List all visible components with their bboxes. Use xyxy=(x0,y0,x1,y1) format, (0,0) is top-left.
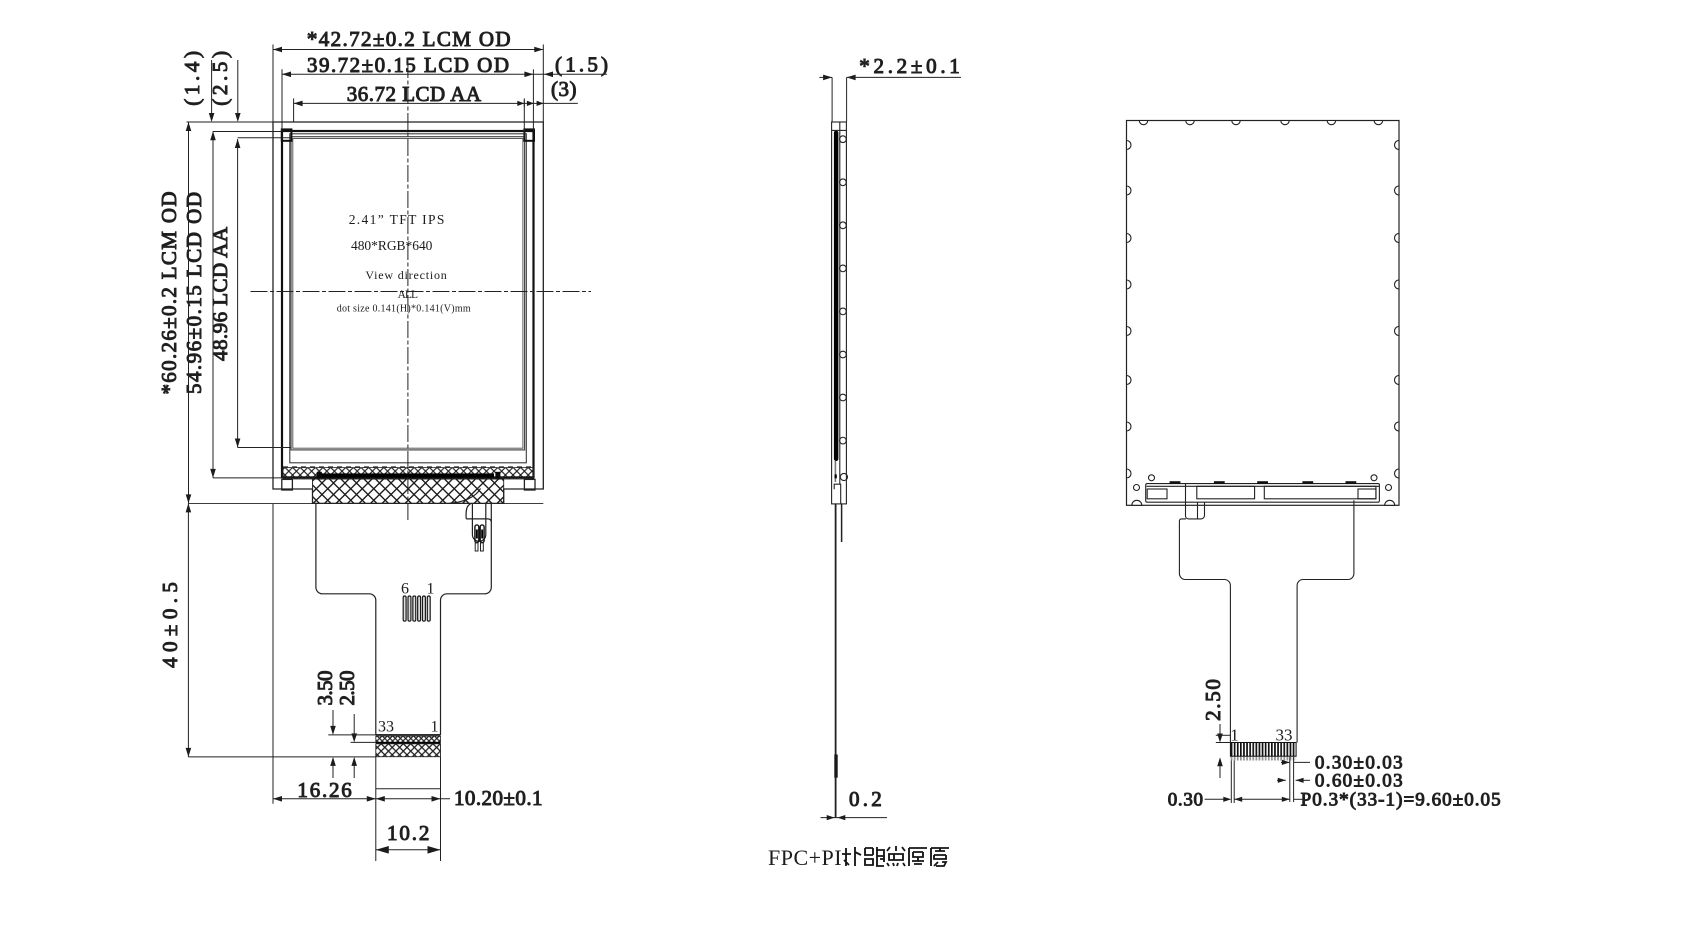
svg-text:33: 33 xyxy=(378,719,394,736)
svg-text:0.30: 0.30 xyxy=(1168,790,1203,811)
svg-text:View direction: View direction xyxy=(365,268,446,282)
svg-text:10.2: 10.2 xyxy=(387,821,429,845)
svg-text:1: 1 xyxy=(1230,726,1239,745)
svg-text:48.96 LCD AA: 48.96 LCD AA xyxy=(208,226,232,361)
svg-text:0.2: 0.2 xyxy=(849,787,882,811)
svg-text:10.20±0.1: 10.20±0.1 xyxy=(454,786,543,810)
svg-text:480*RGB*640: 480*RGB*640 xyxy=(351,238,433,253)
svg-text:*60.26±0.2 LCM OD: *60.26±0.2 LCM OD xyxy=(157,192,181,395)
svg-text:FPC+PI: FPC+PI xyxy=(768,845,842,870)
svg-text:P0.3*(33-1)=9.60±0.05: P0.3*(33-1)=9.60±0.05 xyxy=(1301,790,1501,811)
svg-text:0.60±0.03: 0.60±0.03 xyxy=(1315,771,1403,792)
svg-text:6: 6 xyxy=(401,581,409,598)
svg-text:36.72 LCD AA: 36.72 LCD AA xyxy=(347,82,482,106)
svg-text:54.96±0.15 LCD OD: 54.96±0.15 LCD OD xyxy=(182,192,206,394)
svg-text:2.50: 2.50 xyxy=(335,671,359,706)
svg-text:2.41” TFT IPS: 2.41” TFT IPS xyxy=(349,212,445,227)
svg-text:ALL: ALL xyxy=(398,289,418,301)
svg-text:1: 1 xyxy=(427,581,435,598)
svg-text:3.50: 3.50 xyxy=(313,671,337,706)
svg-text:(3): (3) xyxy=(551,77,577,101)
svg-text:39.72±0.15 LCD OD: 39.72±0.15 LCD OD xyxy=(307,53,509,77)
svg-text:1: 1 xyxy=(431,719,439,736)
svg-text:2.50: 2.50 xyxy=(1201,679,1225,721)
svg-text:*42.72±0.2 LCM OD: *42.72±0.2 LCM OD xyxy=(307,27,511,51)
svg-text:dot size 0.141(H)*0.141(V)mm: dot size 0.141(H)*0.141(V)mm xyxy=(337,304,471,315)
svg-text:33: 33 xyxy=(1276,726,1293,745)
